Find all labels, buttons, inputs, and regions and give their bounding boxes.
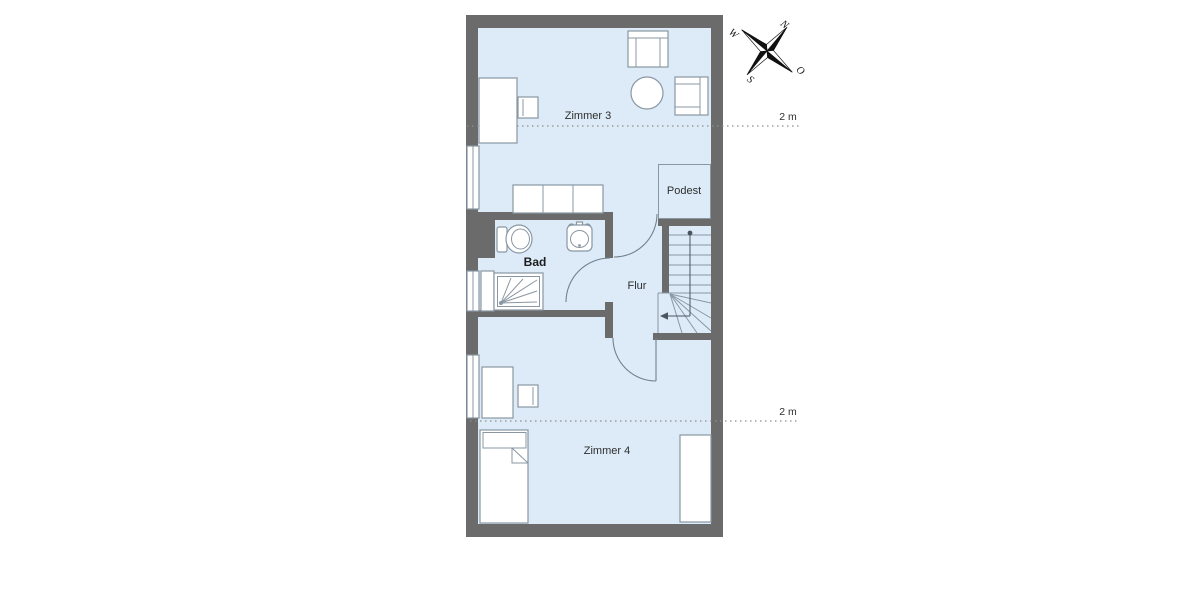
sink-drain: [578, 244, 581, 247]
window-bad: [467, 271, 479, 311]
wall-bad-south: [478, 310, 613, 317]
sink: [567, 222, 592, 251]
headroom-label-upper: 2 m: [779, 111, 797, 123]
compass-west-label: W: [726, 27, 741, 42]
armchair-right: [675, 77, 708, 115]
chimney-block: [478, 212, 495, 258]
desk: [479, 78, 517, 143]
compass-south-label: S: [744, 74, 756, 86]
desk: [482, 367, 513, 418]
window-zimmer4: [467, 355, 479, 418]
bed-right: [680, 435, 711, 522]
floorplan-canvas: 2 m 2 m: [0, 0, 1200, 600]
compass-star: [722, 6, 812, 96]
bed-left: [480, 430, 528, 523]
window-zimmer3: [467, 146, 479, 209]
wall-bad-east-lower: [605, 302, 613, 338]
chair: [518, 385, 538, 407]
armchair-top: [628, 31, 668, 67]
cabinet: [481, 271, 494, 311]
compass-east-label: O: [794, 64, 807, 78]
room-label-flur: Flur: [628, 280, 647, 292]
wall-stairs-bottom: [653, 333, 711, 340]
windows: [467, 146, 479, 418]
compass-north-label: N: [777, 18, 791, 32]
wall-bad-east-upper: [605, 212, 613, 258]
compass-rose: N O S W: [722, 6, 812, 96]
round-table: [631, 77, 663, 109]
toilet: [497, 225, 532, 253]
wall-stairs-left: [662, 219, 669, 293]
headroom-label-lower: 2 m: [779, 406, 797, 418]
room-label-podest: Podest: [667, 185, 701, 197]
room-label-bad: Bad: [524, 255, 547, 269]
floorplan-svg: 2 m 2 m: [0, 0, 1200, 600]
room-label-zimmer3: Zimmer 3: [565, 110, 611, 122]
room-label-zimmer4: Zimmer 4: [584, 445, 630, 457]
sofa: [513, 185, 603, 213]
chair: [518, 97, 538, 118]
shower: [494, 273, 543, 310]
